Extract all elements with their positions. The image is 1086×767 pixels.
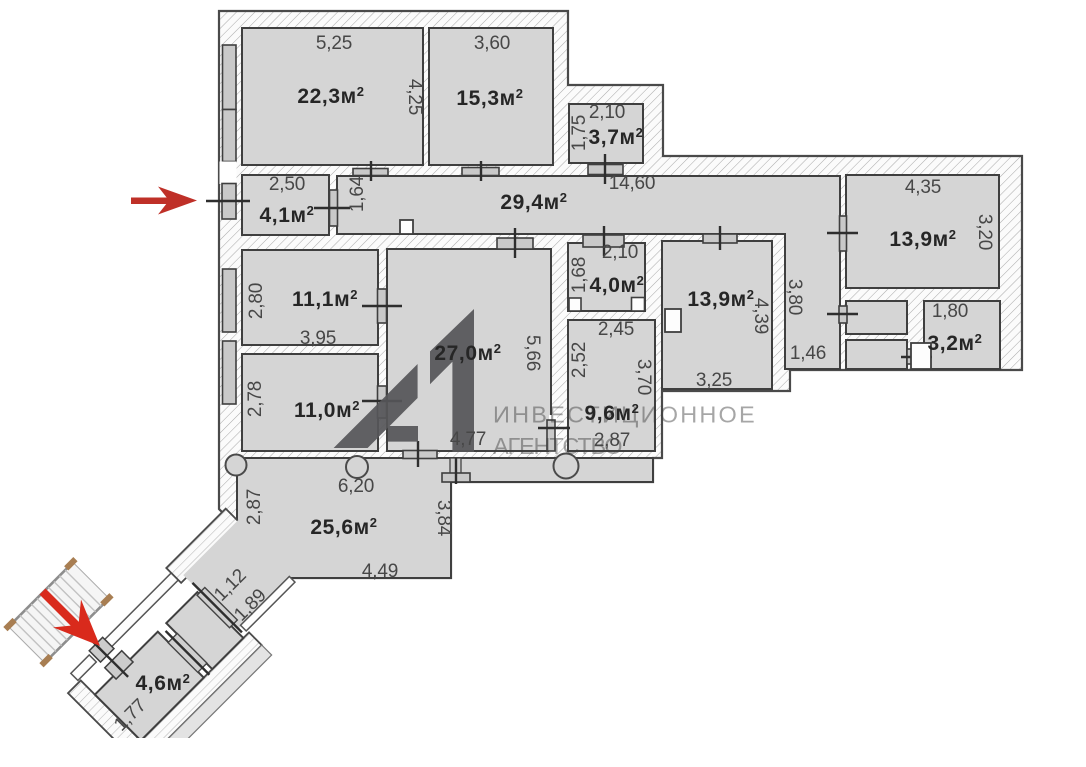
svg-text:1,46: 1,46 — [790, 343, 826, 364]
svg-text:1,75: 1,75 — [569, 115, 590, 151]
svg-text:29,4м2: 29,4м2 — [500, 190, 567, 214]
svg-text:5,25: 5,25 — [316, 33, 352, 54]
svg-text:3,84: 3,84 — [433, 500, 454, 537]
svg-text:4,35: 4,35 — [905, 177, 941, 198]
svg-text:22,3м2: 22,3м2 — [297, 84, 364, 108]
svg-text:3,2м2: 3,2м2 — [928, 331, 983, 355]
svg-text:2,52: 2,52 — [569, 342, 590, 378]
svg-text:3,60: 3,60 — [474, 33, 510, 54]
svg-text:4,0м2: 4,0м2 — [590, 273, 645, 297]
svg-text:13,9м2: 13,9м2 — [687, 287, 754, 311]
svg-text:25,6м2: 25,6м2 — [310, 515, 377, 539]
svg-text:3,80: 3,80 — [784, 279, 805, 315]
svg-text:4,1м2: 4,1м2 — [260, 203, 315, 227]
svg-text:1,68: 1,68 — [569, 257, 590, 293]
svg-text:2,87: 2,87 — [244, 489, 265, 525]
svg-text:4,25: 4,25 — [404, 79, 425, 115]
svg-text:1,80: 1,80 — [932, 301, 968, 322]
svg-text:14,60: 14,60 — [609, 173, 656, 194]
svg-text:4,77: 4,77 — [450, 429, 486, 450]
svg-text:2,87: 2,87 — [594, 430, 630, 451]
svg-text:2,10: 2,10 — [589, 102, 625, 123]
svg-text:15,3м2: 15,3м2 — [456, 86, 523, 110]
svg-text:2,50: 2,50 — [269, 174, 305, 195]
svg-text:3,7м2: 3,7м2 — [589, 125, 644, 149]
svg-text:3,70: 3,70 — [633, 359, 654, 395]
svg-text:3,20: 3,20 — [974, 214, 995, 250]
svg-text:2,45: 2,45 — [598, 319, 634, 340]
svg-text:2,80: 2,80 — [246, 283, 267, 319]
svg-text:4,49: 4,49 — [362, 561, 398, 582]
svg-text:2,78: 2,78 — [245, 381, 266, 417]
svg-text:11,0м2: 11,0м2 — [294, 398, 360, 422]
svg-text:3,95: 3,95 — [300, 328, 336, 349]
svg-text:27,0м2: 27,0м2 — [434, 341, 501, 365]
svg-text:11,1м2: 11,1м2 — [292, 287, 358, 311]
svg-text:9,6м2: 9,6м2 — [585, 401, 640, 425]
svg-text:4,6м2: 4,6м2 — [136, 671, 191, 695]
svg-text:4,39: 4,39 — [750, 298, 771, 334]
svg-text:5,66: 5,66 — [522, 335, 543, 371]
svg-text:1,64: 1,64 — [347, 175, 368, 212]
svg-text:13,9м2: 13,9м2 — [889, 227, 956, 251]
svg-text:6,20: 6,20 — [338, 476, 374, 497]
svg-text:3,25: 3,25 — [696, 370, 732, 391]
svg-text:2,10: 2,10 — [602, 242, 638, 263]
